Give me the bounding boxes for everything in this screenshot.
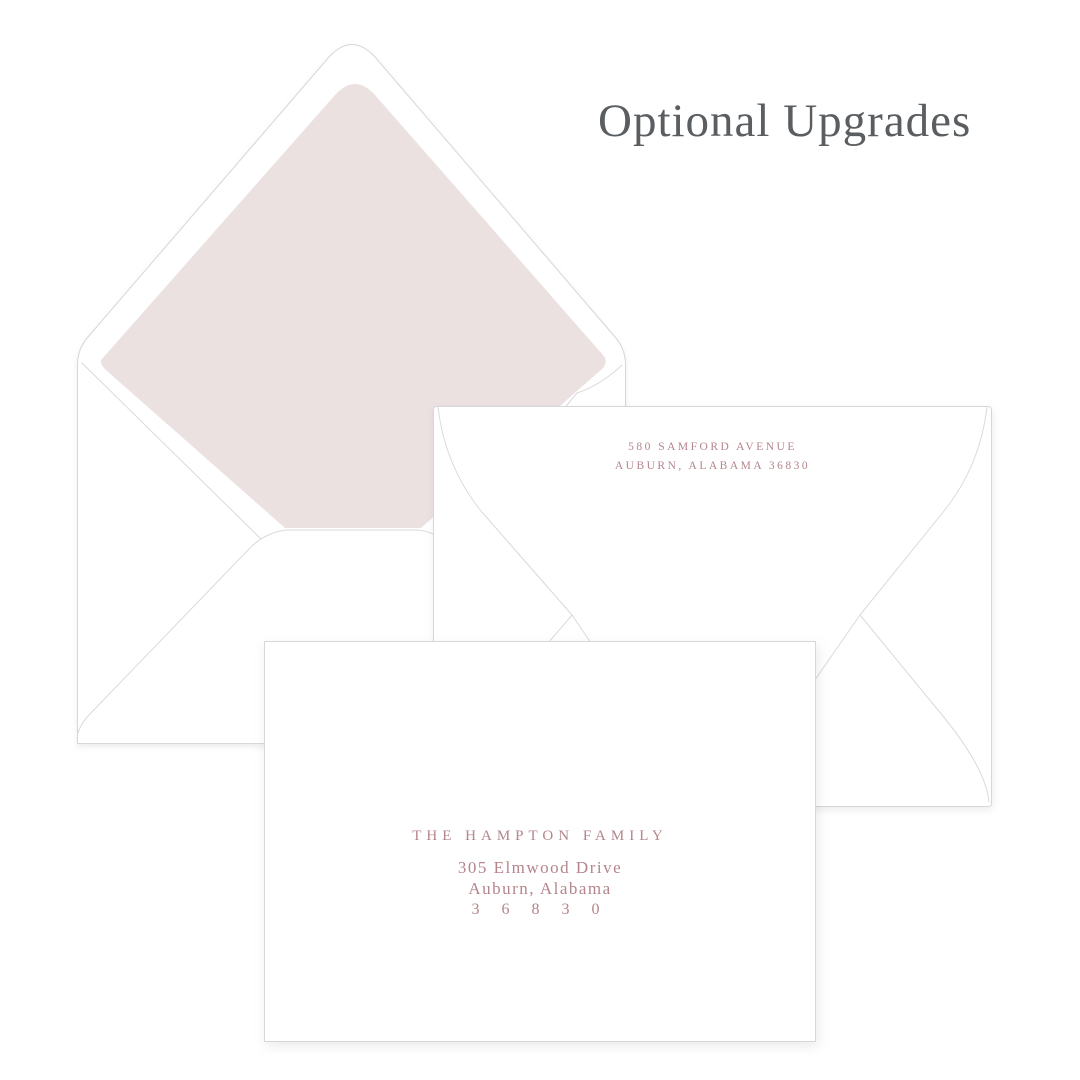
return-address-line-1: 580 SAMFORD AVENUE <box>433 438 992 457</box>
page-title: Optional Upgrades <box>598 96 971 148</box>
product-mockup-canvas: Optional Upgrades 580 SAMFORD AVENUE AUB… <box>0 0 1080 1080</box>
return-address: 580 SAMFORD AVENUE AUBURN, ALABAMA 36830 <box>433 438 992 476</box>
recipient-name: THE HAMPTON FAMILY <box>264 826 816 846</box>
recipient-city: Auburn, Alabama <box>264 878 816 899</box>
return-address-line-2: AUBURN, ALABAMA 36830 <box>433 457 992 476</box>
recipient-street: 305 Elmwood Drive <box>264 857 816 878</box>
recipient-address: THE HAMPTON FAMILY 305 Elmwood Drive Aub… <box>264 826 816 921</box>
recipient-zip: 3 6 8 3 0 <box>264 899 816 921</box>
